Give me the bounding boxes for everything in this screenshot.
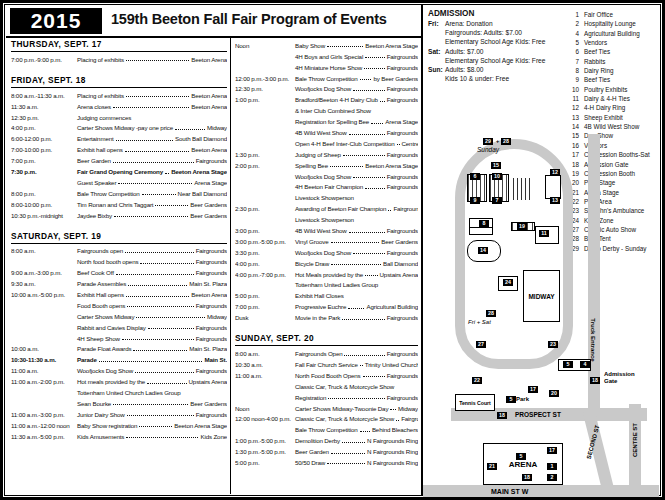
event-time: 2:30 p.m. — [235, 205, 295, 212]
event-location: Beer Gardens — [381, 238, 418, 245]
event-name: 4H Boys and Girls Special — [295, 53, 363, 60]
schedule-row: 1:00 p.m.Bradford/Beeton 4-H Dairy ClubF… — [235, 92, 418, 103]
schedule-row: 4:00 p.m.Bicycle DrawBall Diamond — [235, 256, 418, 267]
dot-leader — [127, 415, 194, 416]
schedule-row: Registration for Spelling BeeArena Stage — [235, 114, 418, 125]
schedule-row: 12:00 noon-4:00 p.m.Classic Car, Truck &… — [235, 412, 418, 423]
map-marker-9: 9 — [470, 197, 480, 204]
event-time: 11:30 a.m. — [11, 103, 77, 110]
schedule-row: 11:00 a.m.-3:00 p.m.Junior Dairy ShowFai… — [11, 407, 227, 418]
dot-leader — [165, 173, 169, 174]
map-marker-28: 28 — [501, 138, 511, 145]
dot-leader — [342, 319, 384, 320]
event-name: Beef Cook Off — [77, 269, 114, 276]
schedule-row: Bale Throw CompetitionBehind Bleachers — [235, 422, 418, 433]
dot-leader — [365, 275, 377, 276]
event-location: Fairgrounds — [196, 367, 227, 374]
event-location: Fairgrounds — [387, 173, 418, 180]
event-name: 4H Beeton Fair Champion — [295, 183, 363, 190]
event-location: Fairgrounds — [196, 302, 227, 309]
schedule-row: DuskMovie in the ParkFairgrounds — [235, 310, 418, 321]
dot-leader — [116, 140, 173, 141]
dot-leader — [390, 409, 396, 410]
event-name: Registration — [295, 394, 326, 401]
event-name: Fairgrounds open — [77, 247, 123, 254]
dot-leader — [331, 264, 381, 265]
event-location: Midway — [207, 124, 227, 131]
event-location: Main St. Plaza — [189, 345, 227, 352]
event-location: Main St. Plaza — [189, 280, 227, 287]
event-time: 5:00 p.m. — [235, 292, 295, 299]
event-name: Placing of exhibits — [77, 92, 124, 99]
event-time: 12:30 p.m. — [11, 114, 77, 121]
dot-leader — [330, 166, 363, 167]
event-name: Junior Dairy Show — [77, 411, 125, 418]
schedule-row: 8:00-10:00 p.m.Tim Ronan and Chris Tagga… — [11, 197, 227, 208]
event-location: Fairgrounds — [387, 394, 418, 401]
dot-leader — [126, 296, 189, 297]
dot-leader — [136, 317, 205, 318]
schedule-row: 1:30 p.m.-5:00 p.m.Beer GardenN Fairgrou… — [235, 444, 418, 455]
program-page: 2015 159th Beeton Fall Fair Program of E… — [0, 0, 665, 500]
event-time: 4:00 p.m.-7:00 p.m. — [235, 271, 295, 278]
map-marker-17: 17 — [528, 386, 538, 393]
event-name: North food booth opens — [77, 258, 138, 265]
dot-leader — [348, 308, 364, 309]
event-name: Carter Shows Midway — [77, 313, 134, 320]
dot-leader — [125, 252, 194, 253]
map-marker-15: 15 — [491, 162, 501, 169]
map-marker-12: 12 — [550, 169, 560, 176]
event-time: 7:00 p.m. — [11, 157, 77, 164]
event-location: Arena Stage — [194, 179, 227, 186]
event-name: Classic Car, Truck & Motorcycle Show — [295, 383, 394, 390]
event-name: Baby Show registration — [77, 422, 137, 429]
dot-leader — [344, 355, 384, 356]
event-location: N Fairgrounds Ring — [367, 437, 418, 444]
dot-leader — [364, 68, 385, 69]
fri-sat-note: Fri + Sat — [468, 319, 491, 325]
event-name: 50/50 Draw — [295, 459, 325, 466]
event-time: 3:30 p.m. — [235, 249, 295, 256]
event-name: Livestock Showperson — [295, 216, 354, 223]
midway-label: MIDWAY — [524, 271, 559, 321]
event-location: Fairgrounds — [393, 205, 418, 212]
event-name: Bale Throw Competition — [77, 190, 140, 197]
event-time: 4:00 p.m. — [235, 260, 295, 267]
event-location: Fairgrounds — [196, 411, 227, 418]
schedule-row: & Inter Club Combined Show — [235, 103, 418, 114]
main-street-road — [423, 485, 659, 499]
event-location: Near Ball Diamond — [178, 190, 227, 197]
event-name: Woofjocks Dog Show — [295, 173, 351, 180]
truck-entrance-label: Truck Entrance — [590, 310, 596, 370]
event-name: Spelling Bee — [295, 162, 328, 169]
event-location: Fairgrounds — [387, 372, 418, 379]
event-name: Parade — [77, 356, 97, 363]
map-marker-13: 13 — [550, 197, 560, 204]
dot-leader — [360, 79, 372, 80]
event-time: 10:30 p.m.-midnight — [11, 212, 77, 219]
map-marker-28: 28 — [486, 310, 496, 317]
dot-leader — [371, 123, 383, 124]
schedule-row: North food booth opensFairgrounds — [11, 254, 227, 265]
event-name: Fall Fair Church Service — [295, 361, 358, 368]
event-location: Fairgrounds — [387, 350, 418, 357]
day-heading: FRIDAY, SEPT. 18 — [11, 75, 227, 88]
event-location: Beeton Arena — [191, 146, 227, 153]
event-name: Parade Float Awards — [77, 345, 131, 352]
tennis-court: Tennis Court — [455, 394, 495, 411]
event-name: Hot Meals provided by the — [295, 271, 363, 278]
event-location: Fairgrounds — [387, 64, 418, 71]
schedule-row: 8:00 a.m.Fairgrounds openFairgrounds — [11, 244, 227, 255]
event-name: Movie in the Park — [295, 314, 340, 321]
event-name: Judging of Sheep — [295, 151, 341, 158]
schedule-row: 6:00-12:00 p.m.EntertainmentSouth Ball D… — [11, 131, 227, 142]
event-name: Sean Bourke — [77, 400, 111, 407]
event-name: Entertainment — [77, 135, 114, 142]
event-time: 10:30-11:30 a.m. — [11, 356, 77, 363]
event-location: Centre Fairgrounds — [402, 140, 419, 147]
event-location: Upstairs Arena — [189, 378, 227, 385]
event-name: 4H Miniature Horse Show — [295, 64, 362, 71]
map-marker-19: 19 — [517, 223, 527, 230]
event-location: Fairgrounds — [196, 335, 227, 342]
schedule-row: 7:00-10:00 p.m.Exhibit hall opensBeeton … — [11, 142, 227, 153]
dot-leader — [114, 216, 188, 217]
map-marker-29: 29 — [483, 138, 493, 145]
event-location: Fairgrounds — [196, 324, 227, 331]
map-marker-20: 20 — [549, 390, 559, 397]
dot-leader — [349, 232, 385, 233]
schedule-row: 4H Boys and Girls SpecialFairgrounds — [235, 49, 418, 60]
dot-leader — [113, 162, 194, 163]
event-name: Exhibit hall opens — [77, 146, 123, 153]
event-time: 7:00 p.m.-9:00 p.m. — [11, 56, 77, 63]
building-divider — [470, 227, 492, 228]
map-marker-18: 18 — [497, 412, 507, 419]
event-location: Fairgrounds — [387, 314, 418, 321]
map-marker-10: 10 — [492, 173, 502, 180]
event-name: Judging commences — [77, 114, 131, 121]
event-location: Beeton Arena Stage — [171, 168, 227, 175]
map-marker-5: 5 — [516, 453, 526, 460]
event-time: 1:30 p.m.-5:00 p.m. — [235, 448, 295, 455]
day-heading: SUNDAY, SEPT. 20 — [235, 333, 418, 346]
dot-leader — [175, 129, 205, 130]
dot-leader — [140, 263, 193, 264]
event-time: 10:30 a.m. — [235, 361, 295, 368]
map-marker-2: 2 — [547, 474, 557, 481]
event-location: Fairgrounds — [387, 53, 418, 60]
dot-leader — [365, 57, 384, 58]
schedule-row: Livestock Showperson — [235, 190, 418, 201]
schedule-row: 5:00 p.m.Exhibit Hall Closes — [235, 288, 418, 299]
schedule-row: 2:00 p.m.Spelling BeeBeeton Arena Stage — [235, 158, 418, 169]
dot-leader — [99, 361, 203, 362]
dot-leader — [133, 350, 187, 351]
schedule-row: 10:00 a.m.Parade Float AwardsMain St. Pl… — [11, 342, 227, 353]
dot-leader — [327, 46, 363, 47]
event-name: North Food Booth Opens — [295, 372, 361, 379]
schedule-row: 10:30 a.m.Fall Fair Church ServiceTrinit… — [235, 357, 418, 368]
event-time: 10:00 a.m.-5:00 p.m. — [11, 291, 77, 298]
dot-leader — [127, 306, 193, 307]
schedule-row: 4:00 p.m.Carter Shows Midway -pay one pr… — [11, 121, 227, 132]
dot-leader — [128, 285, 187, 286]
park-label: Park — [516, 396, 529, 402]
event-name: Bicycle Draw — [295, 260, 329, 267]
event-name: Carter Shows Midway -pay one price — [77, 124, 173, 131]
schedule-row: Open 4-H Beef Inter-Club CompetitionCent… — [235, 136, 418, 147]
event-location: Main St. — [204, 356, 227, 363]
column-divider — [230, 38, 231, 494]
event-location: N Fairgrounds Ring — [367, 459, 418, 466]
map-marker-23: 23 — [548, 341, 558, 348]
event-time: 3:00 p.m.-5:00 p.m. — [235, 238, 295, 245]
dot-leader — [139, 426, 172, 427]
dot-leader — [113, 404, 188, 405]
event-time: 8:00 a.m. — [235, 350, 295, 357]
event-name: Woofjocks Dog Show — [295, 85, 351, 92]
event-time: 11:30 a.m.-5:00 p.m. — [11, 433, 77, 440]
event-time: 6:00-12:00 p.m. — [11, 135, 77, 142]
schedule-row: 4H Miniature Horse ShowFairgrounds — [235, 60, 418, 71]
event-name: Hot meals provided by the — [77, 378, 145, 385]
schedule-row: 7:00 p.m.Progressive EuchreAgricultural … — [235, 299, 418, 310]
fairgrounds-map: MIDWAY Tennis Court ARENA + Sunday Fri +… — [423, 7, 664, 499]
schedule-row: 4B Wild West ShowFairgrounds — [235, 125, 418, 136]
event-location: Fairgrounds — [401, 415, 418, 422]
map-marker-7: 7 — [492, 197, 502, 204]
event-location: Beeton Arena — [191, 92, 227, 99]
event-location: Beeton Arena Stage — [365, 42, 418, 49]
map-marker-18: 18 — [590, 377, 600, 384]
schedule-row: 10:00 a.m.-5:00 p.m.Exhibit Hall opensBe… — [11, 287, 227, 298]
dot-leader — [126, 96, 189, 97]
event-location: Fairgrounds — [387, 151, 418, 158]
event-name: Exhibit Hall opens — [77, 291, 124, 298]
schedule-row: Livestock Showperson — [235, 212, 418, 223]
dot-leader — [113, 107, 189, 108]
map-marker-11: 11 — [539, 230, 549, 237]
schedule-row: Food Booth opensFairgrounds — [11, 298, 227, 309]
event-location: Fairgrounds — [196, 157, 227, 164]
event-location: Fairgrounds — [387, 249, 418, 256]
event-time: 1:00 p.m. — [235, 96, 295, 103]
event-time: 7:00-10:00 p.m. — [11, 146, 77, 153]
schedule-row: NoonCarter Shows Midway-Twoonie DayMidwa… — [235, 401, 418, 412]
day-heading: THURSDAY, SEPT. 17 — [11, 39, 227, 52]
schedule-row: NoonBaby ShowBeeton Arena Stage — [235, 38, 418, 49]
event-time: 8:00 a.m.-11:30 a.m. — [11, 92, 77, 99]
map-marker-6: 6 — [470, 173, 480, 180]
event-name: Parade Assembles — [77, 280, 126, 287]
event-time: 8:00-10:00 p.m. — [11, 201, 77, 208]
dot-leader — [126, 60, 189, 61]
schedule-row: 8:00 a.m.-11:30 a.m.Placing of exhibitsB… — [11, 88, 227, 99]
schedule-row: 12:30 p.m.Woofjocks Dog ShowFairgrounds — [235, 82, 418, 93]
schedule-row: 7:30 p.m.Fair Grand Opening CeremonyBeet… — [11, 164, 227, 175]
schedule-row: 10:30-11:30 a.m.ParadeMain St. — [11, 352, 227, 363]
event-name: Bradford/Beeton 4-H Dairy Club — [295, 96, 378, 103]
map-marker-5: 5 — [563, 361, 573, 368]
dot-leader — [331, 453, 365, 454]
dot-leader — [365, 188, 385, 189]
event-name: Bale Throw Competition — [295, 426, 358, 433]
event-name: Open 4-H Beef Inter-Club Competition — [295, 140, 395, 147]
pens-hatching — [513, 178, 533, 200]
schedule-row: 5:00 p.m.50/50 DrawN Fairgrounds Ring — [235, 455, 418, 466]
event-name: Demolition Derby — [295, 437, 340, 444]
dot-leader — [122, 339, 194, 340]
event-name: Food Booth opens — [77, 302, 125, 309]
schedule-row: Carter Shows MidwayMidway — [11, 309, 227, 320]
event-name: Tim Ronan and Chris Taggart — [77, 201, 153, 208]
event-time: 11:00 a.m. — [235, 372, 295, 379]
sunday-note: Sunday — [477, 146, 499, 153]
dot-leader — [397, 144, 400, 145]
schedule-row: 9:30 a.m.Parade AssemblesMain St. Plaza — [11, 276, 227, 287]
schedule-row: 8:00 p.m.Bale Throw CompetitionNear Ball… — [11, 186, 227, 197]
schedule-column-middle: NoonBaby ShowBeeton Arena Stage4H Boys a… — [235, 38, 418, 466]
schedule-row: 12:30 p.m.Judging commences — [11, 110, 227, 121]
event-time: 9:30 a.m. — [11, 280, 77, 287]
event-location: South Ball Diamond — [175, 135, 227, 142]
schedule-row: 3:00 p.m.4B Wild West ShowFairgrounds — [235, 223, 418, 234]
event-name: 4B Wild West Show — [295, 227, 347, 234]
event-location: Midway — [207, 313, 227, 320]
dot-leader — [353, 253, 385, 254]
dot-leader — [388, 210, 391, 211]
schedule-row: 4H Beeton Fair ChampionFairgrounds — [235, 180, 418, 191]
event-time: 10:00 a.m. — [11, 345, 77, 352]
schedule-row: Guest SpeakerArena Stage — [11, 175, 227, 186]
schedule-row: RegistrationFairgrounds — [235, 390, 418, 401]
dot-leader — [135, 372, 194, 373]
event-time: Dusk — [235, 314, 295, 321]
event-name: Vinyl Groove — [295, 238, 329, 245]
event-location: Fairgrounds — [387, 227, 418, 234]
page-title: 159th Beeton Fall Fair Program of Events — [111, 11, 419, 27]
event-location: Midway — [398, 405, 418, 412]
schedule-row: 11:30 a.m.-5:00 p.m.Kids AmusementsKids … — [11, 429, 227, 440]
event-name: Progressive Euchre — [295, 303, 346, 310]
dot-leader — [116, 274, 194, 275]
map-marker-27: 27 — [476, 341, 486, 348]
event-name: Kids Amusements — [77, 433, 124, 440]
event-location: Fairgrounds — [196, 269, 227, 276]
event-location: Beer Gardens — [190, 201, 227, 208]
event-time: 9:00 a.m.-3:00 p.m. — [11, 269, 77, 276]
event-time: 11:00 a.m. — [11, 367, 77, 374]
event-location: Fairgrounds — [196, 258, 227, 265]
event-time: 1:30 p.m. — [235, 151, 295, 158]
schedule-row: 11:00 a.m.Woofjocks Dog ShowFairgrounds — [11, 363, 227, 374]
event-name: & Inter Club Combined Show — [295, 107, 371, 114]
schedule-row: 1:00 p.m.-5:00 p.m.Demolition DerbyN Fai… — [235, 433, 418, 444]
map-marker-5: 5 — [506, 396, 516, 403]
event-location: Fairgrounds — [387, 85, 418, 92]
building-dairy-ring — [545, 175, 561, 199]
dot-leader — [353, 177, 385, 178]
event-location: Upstairs Arena — [380, 271, 418, 278]
event-location: Arena Stage — [385, 118, 418, 125]
schedule-row: Classic Car, Truck & Motorcycle Show — [235, 379, 418, 390]
event-location: Fairgrounds — [196, 247, 227, 254]
event-name: Rabbit and Cavies Display — [77, 324, 146, 331]
schedule-row: 1:30 p.m.Judging of SheepFairgrounds — [235, 147, 418, 158]
event-time: 11:00 a.m.-12:00 noon — [11, 422, 77, 429]
event-time: 4:00 p.m. — [11, 124, 77, 131]
schedule-row: Tottenham United Ladies Group — [235, 278, 418, 289]
event-time: 2:00 p.m. — [235, 162, 295, 169]
event-name: Guest Speaker — [77, 179, 116, 186]
tennis-court-label: Tennis Court — [456, 395, 494, 410]
event-name: Exhibit Hall Closes — [295, 292, 344, 299]
dot-leader — [142, 194, 176, 195]
schedule-row: 7:00 p.m.-9:00 p.m.Placing of exhibitsBe… — [11, 52, 227, 63]
schedule-row: 11:30 a.m.Arena closesBeeton Arena — [11, 99, 227, 110]
event-location: Trinity United Church — [365, 361, 418, 368]
schedule-row: Rabbit and Cavies DisplayFairgrounds — [11, 320, 227, 331]
dot-leader — [396, 420, 399, 421]
event-location: Beeton Arena — [191, 291, 227, 298]
event-name: Fairgrounds Open — [295, 350, 342, 357]
event-name: Arena closes — [77, 103, 111, 110]
event-location: Beeton Arena — [191, 103, 227, 110]
schedule-row: 12:00 p.m.-3:00 p.m.Bale Throw Competiti… — [235, 71, 418, 82]
dot-leader — [342, 442, 365, 443]
schedule-row: 4H Sheep ShowFairgrounds — [11, 331, 227, 342]
event-time: Noon — [235, 42, 295, 49]
event-time: 8:00 a.m. — [11, 247, 77, 254]
dot-leader — [126, 437, 198, 438]
event-name: 4H Sheep Show — [77, 335, 120, 342]
centre-street-label: CENTRE ST — [632, 418, 638, 462]
schedule-row: 11:00 a.m.North Food Booth OpensFairgrou… — [235, 368, 418, 379]
map-marker-14: 14 — [478, 247, 488, 254]
map-marker-22: 22 — [472, 377, 482, 384]
dot-leader — [331, 242, 380, 243]
dot-leader — [360, 431, 370, 432]
event-location: Fairgrounds — [387, 96, 418, 103]
event-name: 4B Wild West Show — [295, 129, 347, 136]
event-time: 12:00 noon-4:00 p.m. — [235, 415, 295, 422]
year-badge: 2015 — [10, 8, 102, 34]
dot-leader — [118, 183, 192, 184]
event-location: Fairgrounds — [387, 129, 418, 136]
event-time: 12:00 p.m.-3:00 p.m. — [235, 75, 295, 82]
right-panel: ADMISSION Fri:Arena: DonationFairgrounds… — [423, 7, 664, 499]
schedule-row: 11:00 a.m.-12:00 noonBaby Show registrat… — [11, 418, 227, 429]
dot-leader — [343, 155, 385, 156]
map-marker-24: 24 — [503, 279, 513, 286]
event-name: Jaydee Bixby — [77, 212, 112, 219]
event-name: Beer Garden — [77, 157, 111, 164]
event-name: Awarding of Beeton Fair Champion — [295, 205, 386, 212]
schedule-row: Woofjocks Dog ShowFairgrounds — [235, 169, 418, 180]
event-name: Livestock Showperson — [295, 194, 354, 201]
event-time: Noon — [235, 405, 295, 412]
schedule-row: 8:00 a.m.Fairgrounds OpenFairgrounds — [235, 346, 418, 357]
event-time: 11:00 a.m.-2:00 p.m. — [11, 378, 77, 385]
dot-leader — [363, 376, 385, 377]
day-heading: SATURDAY, SEPT. 19 — [11, 231, 227, 244]
event-name: Woofjocks Dog Show — [295, 249, 351, 256]
event-name: Carter Shows Midway-Twoonie Day — [295, 405, 388, 412]
